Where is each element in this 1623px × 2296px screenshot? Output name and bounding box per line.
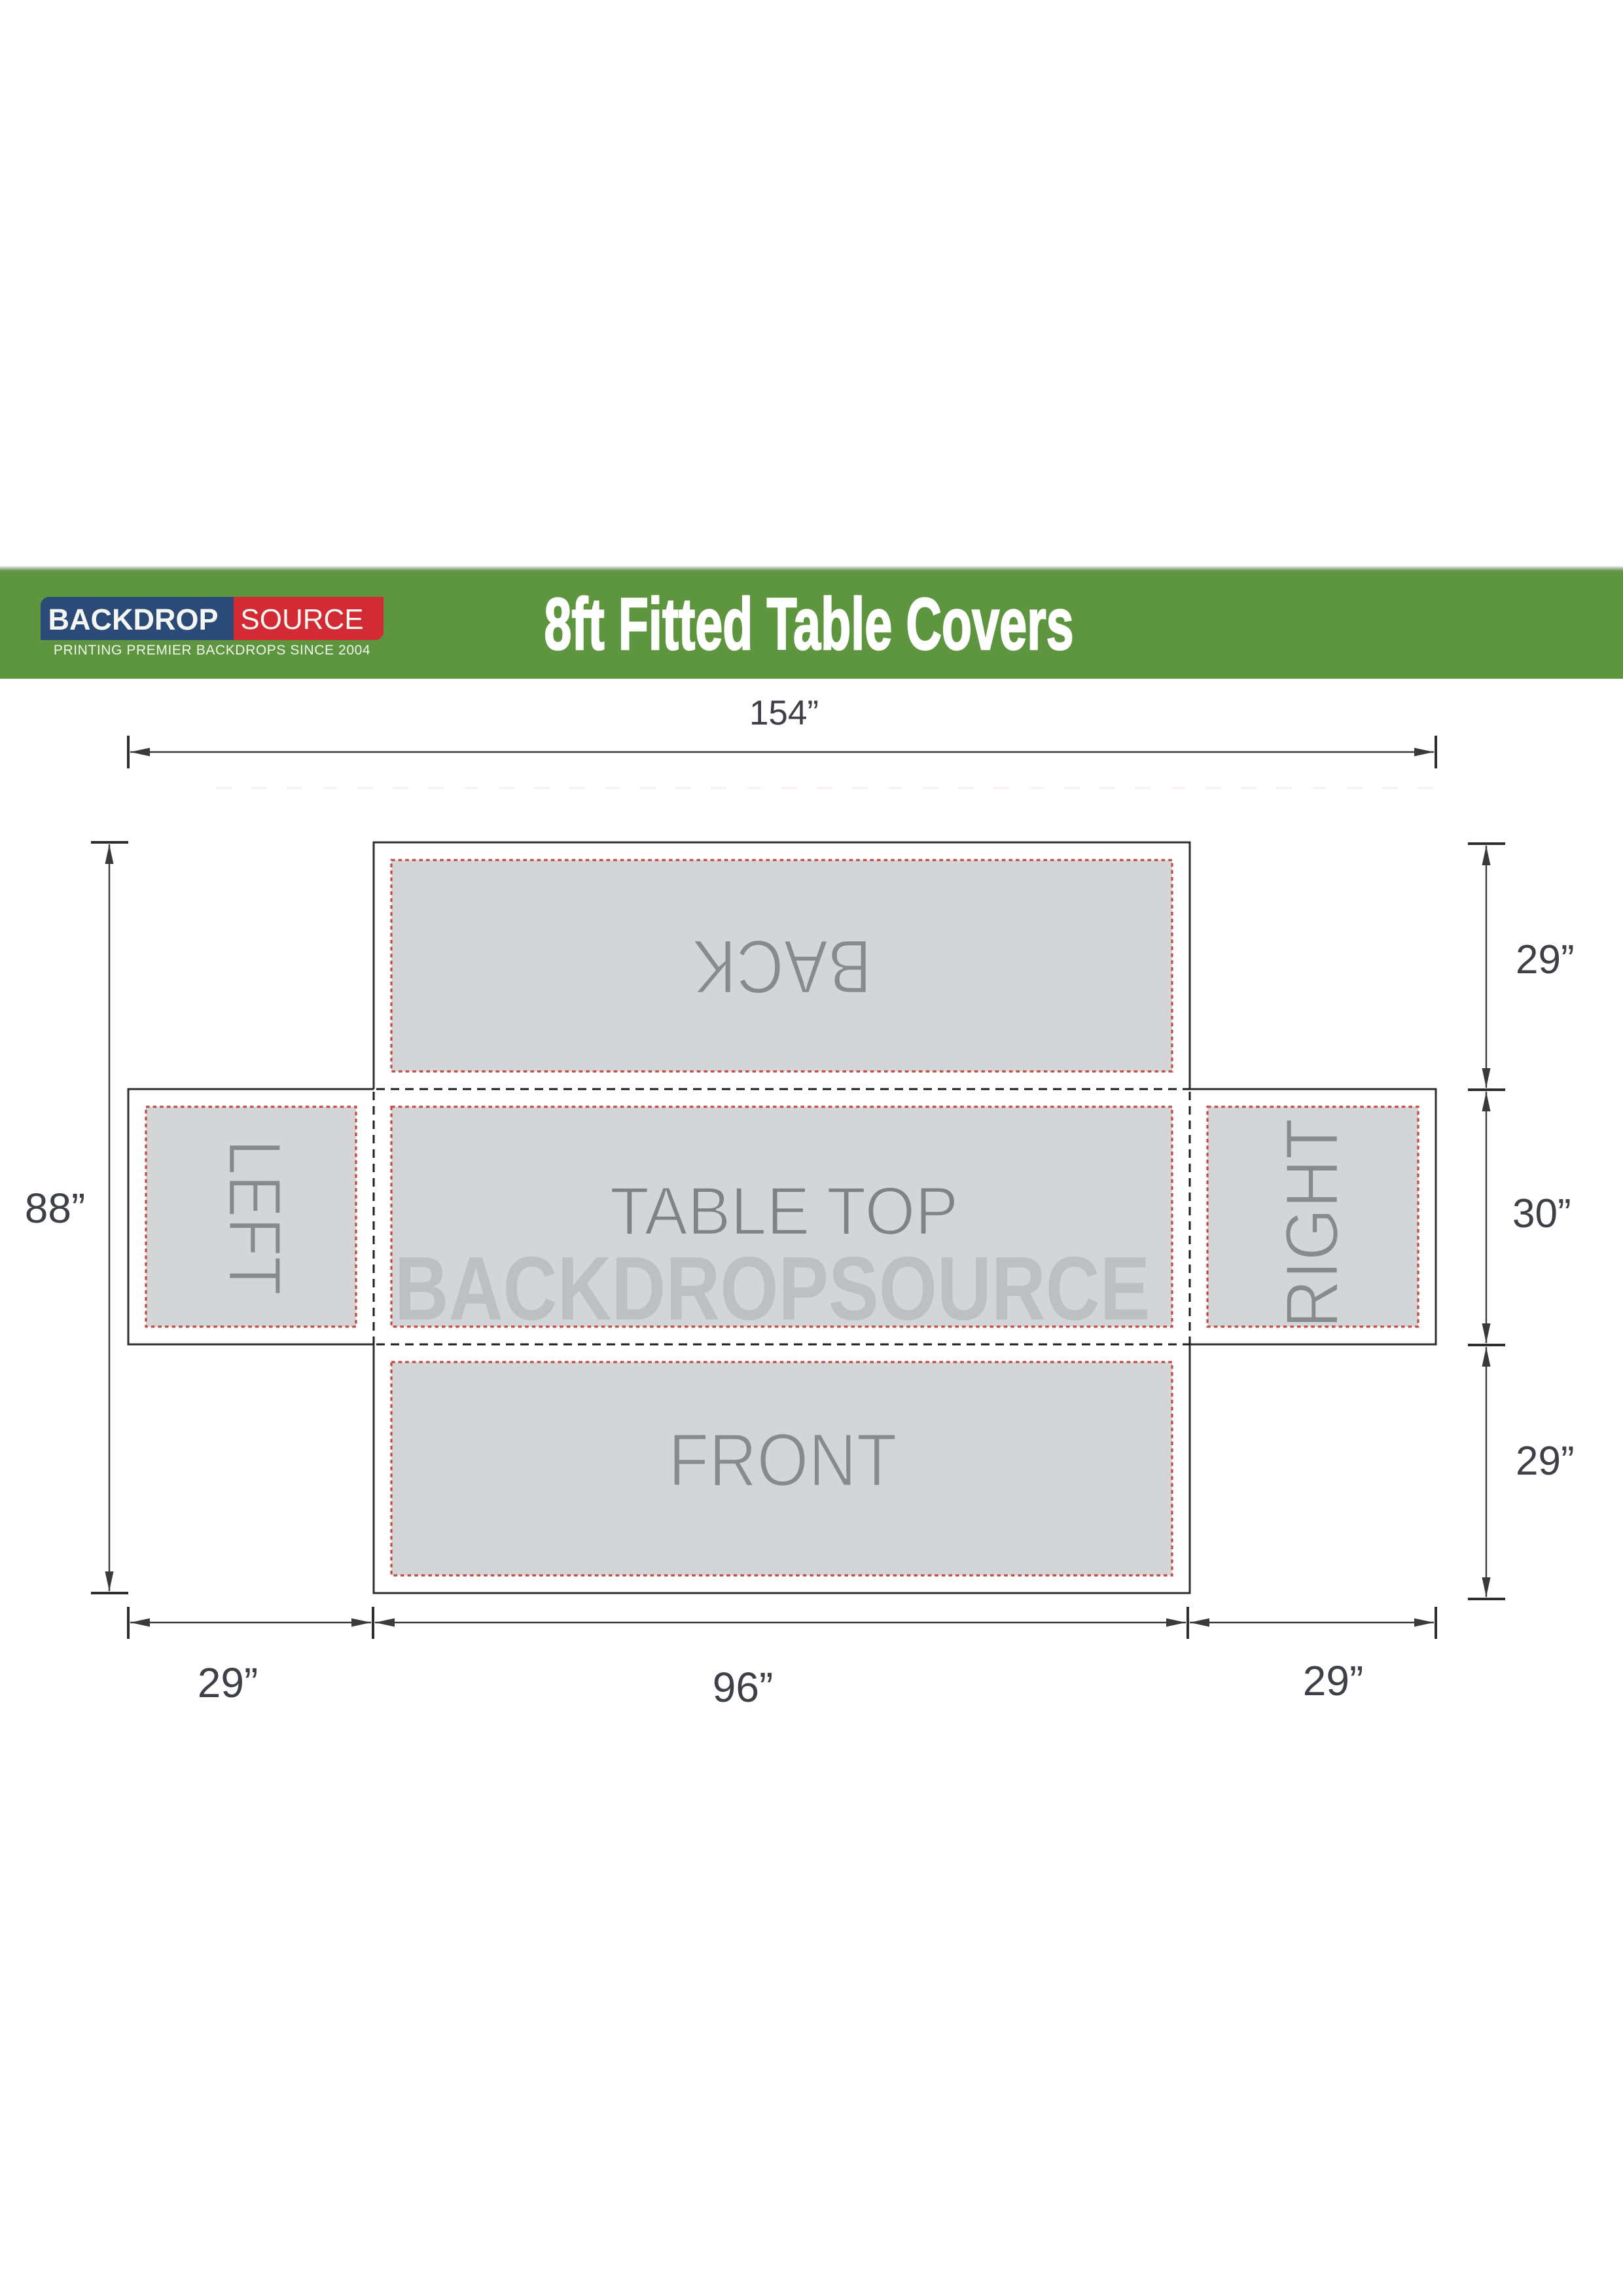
svg-text:88”: 88” xyxy=(25,1185,86,1232)
svg-text:LEFT: LEFT xyxy=(213,1139,296,1295)
svg-text:154”: 154” xyxy=(749,694,819,732)
svg-text:29”: 29” xyxy=(1516,1439,1575,1484)
svg-text:29”: 29” xyxy=(198,1659,259,1706)
svg-text:RIGHT: RIGHT xyxy=(1271,1119,1354,1329)
svg-text:29”: 29” xyxy=(1303,1657,1364,1704)
svg-text:30”: 30” xyxy=(1512,1191,1571,1236)
svg-text:29”: 29” xyxy=(1516,937,1575,982)
svg-text:FRONT: FRONT xyxy=(668,1418,897,1501)
svg-text:BACKDROPSOURCE: BACKDROPSOURCE xyxy=(395,1238,1150,1338)
svg-text:BACK: BACK xyxy=(692,924,872,1008)
svg-text:96”: 96” xyxy=(713,1664,774,1711)
